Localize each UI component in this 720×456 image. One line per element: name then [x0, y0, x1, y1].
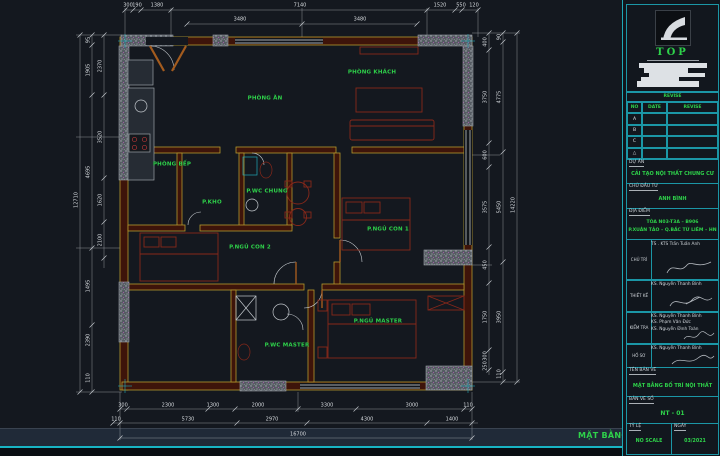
dim-label: 1300 [207, 404, 220, 409]
person-role: HỒ SƠ [627, 344, 652, 368]
location-line1: TÒA N03-T3A – B906 [627, 220, 718, 226]
person-row: HỒ SƠ KS. Nguyễn Thanh Bình [626, 343, 719, 369]
room-label: P.WC MASTER [265, 343, 310, 349]
dim-label: 2300 [162, 404, 175, 409]
room-label: P.NGỦ MASTER [354, 319, 402, 325]
signature [664, 257, 716, 279]
person-name: KS. Nguyễn Thanh Bình [651, 314, 702, 319]
date-label: NGÀY [674, 425, 686, 431]
person-name: KS. Nguyễn Thanh Bình [651, 346, 702, 351]
person-role: THIẾT KẾ [627, 280, 652, 312]
dim-label: 400 [484, 37, 489, 47]
revision-header-text: REVISE [627, 94, 718, 99]
sheet-edge [0, 448, 720, 456]
dim-label: 190 [132, 4, 142, 9]
rev-cell [667, 148, 718, 159]
date-cell: NGÀY 03/2021 [672, 424, 718, 454]
logo-underline [647, 60, 699, 61]
rev-cell [667, 125, 718, 136]
person-name: TS . KTS Trần Tuấn Anh [651, 242, 700, 247]
signature [666, 293, 716, 311]
revision-table: NO DATE REVISE A B C △ [626, 101, 719, 160]
drawing-name-label: TÊN BẢN VẼ [629, 369, 656, 375]
rev-cell [642, 125, 667, 136]
room-label: PHÒNG BẾP [153, 162, 191, 168]
dim-label: 14220 [512, 197, 517, 213]
dim-label: 4300 [361, 418, 374, 423]
rev-row-letter: △ [627, 148, 642, 159]
rev-col-revise: REVISE [667, 102, 718, 113]
person-role: KIỂM TRA [627, 312, 652, 344]
dim-label: 5730 [182, 418, 195, 423]
room-label: PHÒNG ĂN [248, 96, 283, 102]
dim-label: 1495 [87, 280, 92, 293]
cad-sheet: 3001901380714015205501203480348012710951… [0, 0, 720, 456]
dim-label: 1380 [151, 4, 164, 9]
title-block: TOP REVISE NO DATE REVISE A B C △ DỰ ÁN … [622, 0, 720, 456]
dim-label: 110 [111, 418, 121, 423]
room-label: P.WC CHUNG [246, 189, 287, 195]
dim-label: 3300 [321, 404, 334, 409]
drawing-name-section: TÊN BẢN VẼ MẶT BẰNG BỐ TRÍ NỘI THẤT [626, 367, 719, 398]
dim-label: 3480 [354, 18, 367, 23]
room-label: P.NGỦ CON 1 [367, 227, 409, 233]
dim-label: 16700 [290, 433, 306, 438]
dim-label: 120 [469, 4, 479, 9]
rev-cell [667, 136, 718, 147]
scale-cell: TỶ LỆ NO SCALE [627, 424, 672, 454]
scale-value: NO SCALE [627, 439, 671, 445]
sheet-number-label: BẢN VẼ SỐ [629, 398, 654, 404]
company-logo-icon [655, 10, 691, 46]
project-name: CẢI TẠO NỘI THẤT CHUNG CƯ [627, 171, 718, 177]
project-section: DỰ ÁN CẢI TẠO NỘI THẤT CHUNG CƯ [626, 159, 719, 184]
project-label: DỰ ÁN [629, 161, 644, 167]
rev-col-date: DATE [642, 102, 667, 113]
dim-label: 550 [456, 4, 466, 9]
room-label: P.KHO [202, 200, 222, 206]
dim-label: 4695 [87, 166, 92, 179]
dim-label: 4775 [498, 91, 503, 104]
signature [682, 329, 716, 343]
dim-label: 2370 [99, 60, 104, 73]
person-row: THIẾT KẾ KS. Nguyễn Thanh Bình [626, 279, 719, 313]
location-section: ĐỊA ĐIỂM TÒA N03-T3A – B906 P.XUÂN TẢO –… [626, 208, 719, 240]
dim-label: 300 [484, 351, 489, 361]
dim-label: 5450 [498, 201, 503, 214]
scale-date-section: TỶ LỆ NO SCALE NGÀY 03/2021 [626, 423, 719, 455]
location-line2: P.XUÂN TẢO – Q.BẮC TỪ LIÊM – HN [627, 228, 718, 234]
rev-row-letter: B [627, 125, 642, 136]
dim-label: 3575 [484, 201, 489, 214]
client-name: ANH BÌNH [627, 196, 718, 202]
room-label: P.NGỦ CON 2 [229, 245, 271, 251]
dim-label: 110 [87, 373, 92, 383]
dim-label: 95 [87, 37, 92, 43]
dim-label: 3750 [484, 91, 489, 104]
signature [668, 353, 716, 367]
dim-label: 3950 [498, 311, 503, 324]
dim-label: 2970 [266, 418, 279, 423]
dim-label: 2100 [99, 234, 104, 247]
drawing-name: MẶT BẰNG BỐ TRÍ NỘI THẤT [627, 383, 718, 389]
dim-label: 2000 [252, 404, 265, 409]
rev-row-letter: C [627, 136, 642, 147]
dim-label: 1620 [99, 194, 104, 207]
sheet-number-section: BẢN VẼ SỐ NT - 01 [626, 396, 719, 425]
rev-cell [642, 148, 667, 159]
client-section: CHỦ ĐẦU TƯ ANH BÌNH [626, 183, 719, 209]
dim-label: 110 [463, 404, 473, 409]
dim-label: 1520 [434, 4, 447, 9]
rev-cell [642, 113, 667, 124]
dim-label: 3480 [234, 18, 247, 23]
person-name: KS. Nguyễn Thanh Bình [651, 282, 702, 287]
sheet-border-line [0, 446, 720, 448]
dim-label: 3000 [406, 404, 419, 409]
rev-cell [667, 113, 718, 124]
client-label: CHỦ ĐẦU TƯ [629, 185, 658, 191]
dim-label: 1400 [446, 418, 459, 423]
dim-label: 7140 [294, 4, 307, 9]
dim-label: 110 [498, 369, 503, 379]
location-label: ĐỊA ĐIỂM [629, 210, 650, 216]
logo-text: TOP [627, 47, 718, 58]
dim-label: 3520 [99, 131, 104, 144]
dim-label: 1905 [87, 64, 92, 77]
dim-label: 90 [498, 34, 503, 40]
date-value: 03/2021 [672, 439, 718, 445]
rev-col-no: NO [627, 102, 642, 113]
dim-label: 300 [118, 404, 128, 409]
dim-label: 250 [484, 361, 489, 371]
dim-label: 450 [484, 260, 489, 270]
scale-label: TỶ LỆ [629, 425, 641, 431]
person-name: KS. Phạm Văn Đức [651, 320, 691, 325]
person-row: CHỦ TRÌ TS . KTS Trần Tuấn Anh [626, 239, 719, 281]
room-label: PHÒNG KHÁCH [348, 70, 396, 76]
company-logo-box: TOP [626, 4, 719, 92]
dim-label: 12710 [75, 192, 80, 208]
person-role: CHỦ TRÌ [627, 240, 652, 280]
logo-podium-icon [627, 63, 718, 87]
rev-row-letter: A [627, 113, 642, 124]
plan-text-layer: 3001901380714015205501203480348012710951… [0, 0, 622, 456]
person-row: KIỂM TRA KS. Nguyễn Thanh Bình KS. Phạm … [626, 311, 719, 345]
dim-label: 600 [484, 150, 489, 160]
dim-label: 2390 [87, 334, 92, 347]
rev-cell [642, 136, 667, 147]
dim-label: 1750 [484, 311, 489, 324]
sheet-number: NT - 01 [627, 410, 718, 417]
